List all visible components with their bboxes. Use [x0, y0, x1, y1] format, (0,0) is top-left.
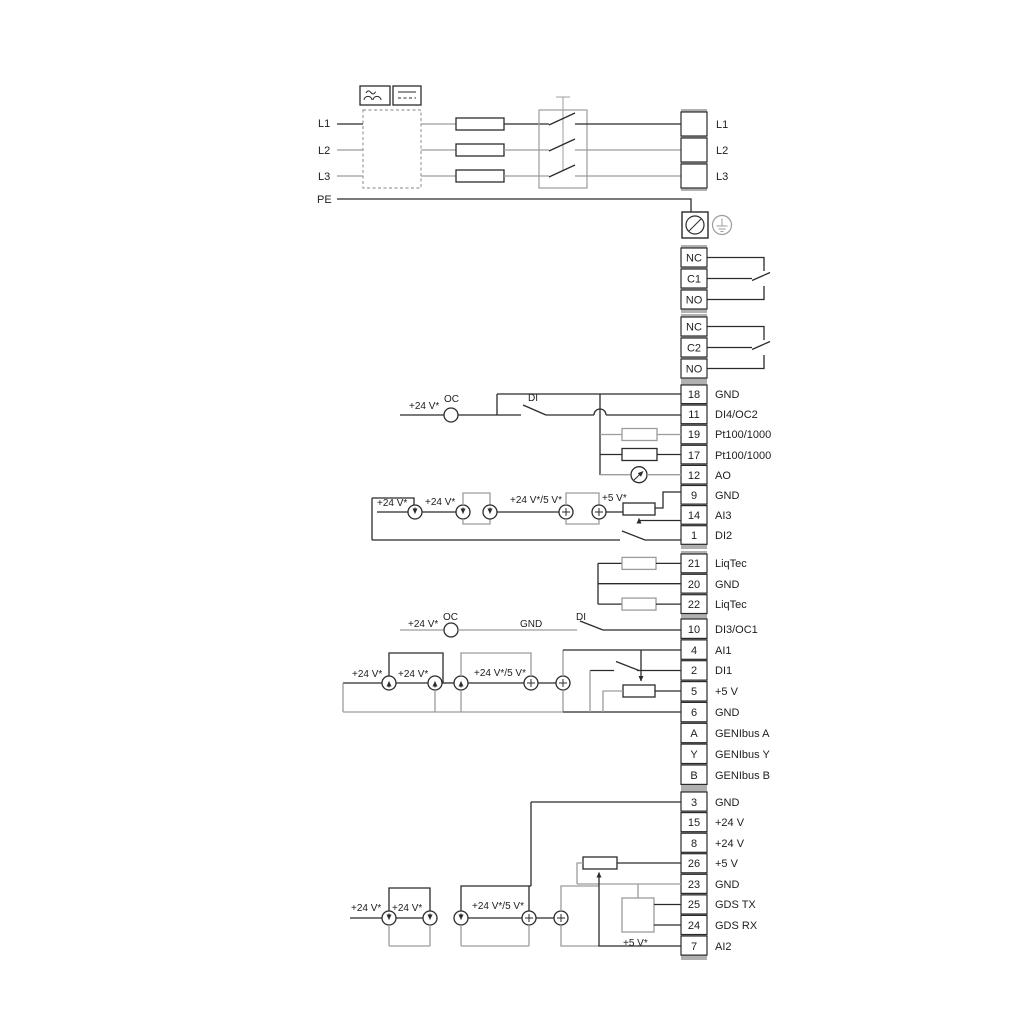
relay2-no-label: NO — [686, 364, 703, 376]
ai3-wiring: +24 V* +24 V* +24 V*/5 V* +5 V* — [372, 492, 681, 540]
mains-in-l1-label: L1 — [318, 118, 330, 130]
voltage-source-icon — [559, 505, 573, 519]
io-terminal-block-2: 21 20 22 LiqTec GND LiqTec — [681, 551, 747, 618]
pt100-sensor-icon — [622, 449, 657, 461]
liqtec-wiring — [598, 557, 681, 610]
potentiometer-icon — [583, 857, 617, 869]
liqtec-sensor-icon — [622, 598, 656, 610]
pin-4: 4 — [691, 645, 697, 657]
label-gnd4: GND — [715, 707, 740, 719]
label-genibus-a: GENIbus A — [715, 728, 770, 740]
pin-25: 25 — [688, 899, 700, 911]
pin-9: 9 — [691, 490, 697, 502]
current-source-icon — [428, 676, 442, 690]
pt100-sensor-icon — [622, 429, 657, 441]
relay1-c1-label: C1 — [687, 274, 701, 286]
pin-21: 21 — [688, 558, 700, 570]
plus24v-5v-label: +24 V*/5 V* — [472, 901, 524, 912]
pin-26: 26 — [688, 858, 700, 870]
dc-symbol-icon — [393, 86, 421, 105]
pin-7: 7 — [691, 941, 697, 953]
relay-block-2: NC C2 NO — [681, 314, 770, 382]
plus5v-label: +5 V* — [623, 938, 648, 949]
ai1-wiring: +24 V* +24 V* +24 V*/5 V* — [343, 650, 681, 712]
label-ai2: AI2 — [715, 941, 732, 953]
plus24v-5v-label: +24 V*/5 V* — [510, 495, 562, 506]
voltage-source-icon — [554, 911, 568, 925]
gds-sensor-box — [622, 884, 681, 932]
io-terminal-block-1: 18 11 19 17 12 9 14 1 GND DI4/OC2 Pt100/… — [681, 382, 771, 549]
label-genibus-y: GENIbus Y — [715, 749, 770, 761]
label-24v-b: +24 V — [715, 838, 745, 850]
label-ai1: AI1 — [715, 645, 732, 657]
pin-2: 2 — [691, 665, 697, 677]
label-di3: DI3/OC1 — [715, 624, 758, 636]
ac-symbol-icon — [360, 86, 390, 105]
label-liqtec2: LiqTec — [715, 599, 747, 611]
analog-output-meter-icon — [631, 467, 647, 483]
relay1-nc-label: NC — [686, 253, 702, 265]
wiring-diagram: L1 L2 L3 PE — [0, 0, 1024, 1024]
io-terminal-block-4: 3 15 8 26 23 25 24 7 GND +24 V +24 V +5 … — [681, 789, 758, 960]
fuse-l2-icon — [456, 144, 504, 156]
mains-out-l2-label: L2 — [716, 145, 728, 157]
current-source-icon — [382, 676, 396, 690]
mains-terminal-block: L1 L2 L3 — [681, 109, 728, 191]
label-pt100a: Pt100/1000 — [715, 429, 771, 441]
label-5v-b: +5 V — [715, 858, 739, 870]
current-source-icon — [408, 505, 422, 519]
plus24v-label: +24 V* — [351, 903, 381, 914]
pin-23: 23 — [688, 879, 700, 891]
label-ao: AO — [715, 470, 731, 482]
ai2-gds-wiring: +24 V* +24 V* +24 V*/5 V* +5 V* — [350, 802, 681, 949]
plus24v-5v-label: +24 V*/5 V* — [474, 668, 526, 679]
pin-19: 19 — [688, 429, 700, 441]
pin-20: 20 — [688, 579, 700, 591]
label-gnd5: GND — [715, 797, 740, 809]
current-source-icon — [382, 911, 396, 925]
plus24v-label: +24 V* — [392, 903, 422, 914]
mains-in-l3-label: L3 — [318, 171, 330, 183]
pin-22: 22 — [688, 599, 700, 611]
label-gds-rx: GDS RX — [715, 920, 758, 932]
label-24v-a: +24 V — [715, 817, 745, 829]
open-collector-icon — [444, 408, 458, 422]
di3-oc1-wiring: +24 V* OC GND DI — [400, 612, 681, 637]
fuse-l3-icon — [456, 170, 504, 182]
relay-block-1: NC C1 NO — [681, 245, 770, 313]
plus24v-label: +24 V* — [425, 497, 455, 508]
oc-label: OC — [444, 394, 459, 405]
label-gnd3: GND — [715, 579, 740, 591]
di-switch-icon — [580, 621, 603, 630]
potentiometer-icon — [623, 503, 655, 515]
pin-y: Y — [690, 749, 698, 761]
fuse-l1-icon — [456, 118, 504, 130]
label-gnd6: GND — [715, 879, 740, 891]
pin-15: 15 — [688, 817, 700, 829]
plus24v-label: +24 V* — [398, 669, 428, 680]
relay2-nc-label: NC — [686, 322, 702, 334]
di4-oc2-wiring: +24 V* OC DI — [400, 393, 681, 483]
voltage-source-icon — [556, 676, 570, 690]
label-5v: +5 V — [715, 686, 739, 698]
relay1-contact-icon — [707, 258, 770, 300]
relay2-contact-icon — [707, 327, 770, 369]
io-terminal-block-3: 10 4 2 5 6 A Y B DI3/OC1 AI1 DI1 +5 V GN… — [681, 616, 770, 789]
mains-input-section: L1 L2 L3 PE — [317, 86, 732, 238]
pin-8: 8 — [691, 838, 697, 850]
di-switch-icon — [523, 405, 546, 415]
liqtec-sensor-icon — [622, 557, 656, 569]
voltage-source-icon — [524, 676, 538, 690]
pin-17: 17 — [688, 450, 700, 462]
current-source-icon — [456, 505, 470, 519]
potentiometer-icon — [623, 685, 655, 697]
di2-switch-icon — [622, 531, 645, 540]
plus24v-label: +24 V* — [377, 498, 407, 509]
voltage-source-icon — [522, 911, 536, 925]
mains-out-l1-label: L1 — [716, 119, 728, 131]
plus24v-label: +24 V* — [409, 401, 439, 412]
open-collector-icon — [444, 623, 458, 637]
label-ai3: AI3 — [715, 510, 732, 522]
pin-24: 24 — [688, 920, 700, 932]
pin-3: 3 — [691, 797, 697, 809]
current-source-icon — [423, 911, 437, 925]
label-gnd: GND — [715, 389, 740, 401]
pe-label: PE — [317, 194, 332, 206]
pin-18: 18 — [688, 389, 700, 401]
label-gds-tx: GDS TX — [715, 899, 756, 911]
earth-ground-icon — [713, 216, 732, 235]
pin-1: 1 — [691, 530, 697, 542]
pin-14: 14 — [688, 510, 700, 522]
pin-b: B — [690, 770, 697, 782]
mains-out-l3-label: L3 — [716, 171, 728, 183]
oc-label: OC — [443, 612, 458, 623]
gnd-label: GND — [520, 619, 542, 630]
label-pt100b: Pt100/1000 — [715, 450, 771, 462]
label-di1: DI1 — [715, 665, 732, 677]
current-source-icon — [454, 911, 468, 925]
voltage-source-icon — [592, 505, 606, 519]
plus24v-label: +24 V* — [352, 669, 382, 680]
label-di2: DI2 — [715, 530, 732, 542]
label-liqtec1: LiqTec — [715, 558, 747, 570]
relay1-no-label: NO — [686, 295, 703, 307]
plus24v-label: +24 V* — [408, 619, 438, 630]
label-genibus-b: GENIbus B — [715, 770, 770, 782]
pin-6: 6 — [691, 707, 697, 719]
di1-switch-icon — [616, 662, 639, 671]
pin-5: 5 — [691, 686, 697, 698]
pin-a: A — [690, 728, 698, 740]
pin-11: 11 — [688, 409, 699, 421]
mains-in-l2-label: L2 — [318, 145, 330, 157]
emc-filter-box — [360, 86, 421, 188]
pe-terminal — [337, 199, 732, 238]
label-gnd2: GND — [715, 490, 740, 502]
current-source-icon — [483, 505, 497, 519]
current-source-icon — [454, 676, 468, 690]
pin-10: 10 — [688, 624, 700, 636]
main-switch-icon — [539, 97, 587, 188]
pin-12: 12 — [688, 470, 700, 482]
relay2-c2-label: C2 — [687, 343, 701, 355]
label-di4: DI4/OC2 — [715, 409, 758, 421]
